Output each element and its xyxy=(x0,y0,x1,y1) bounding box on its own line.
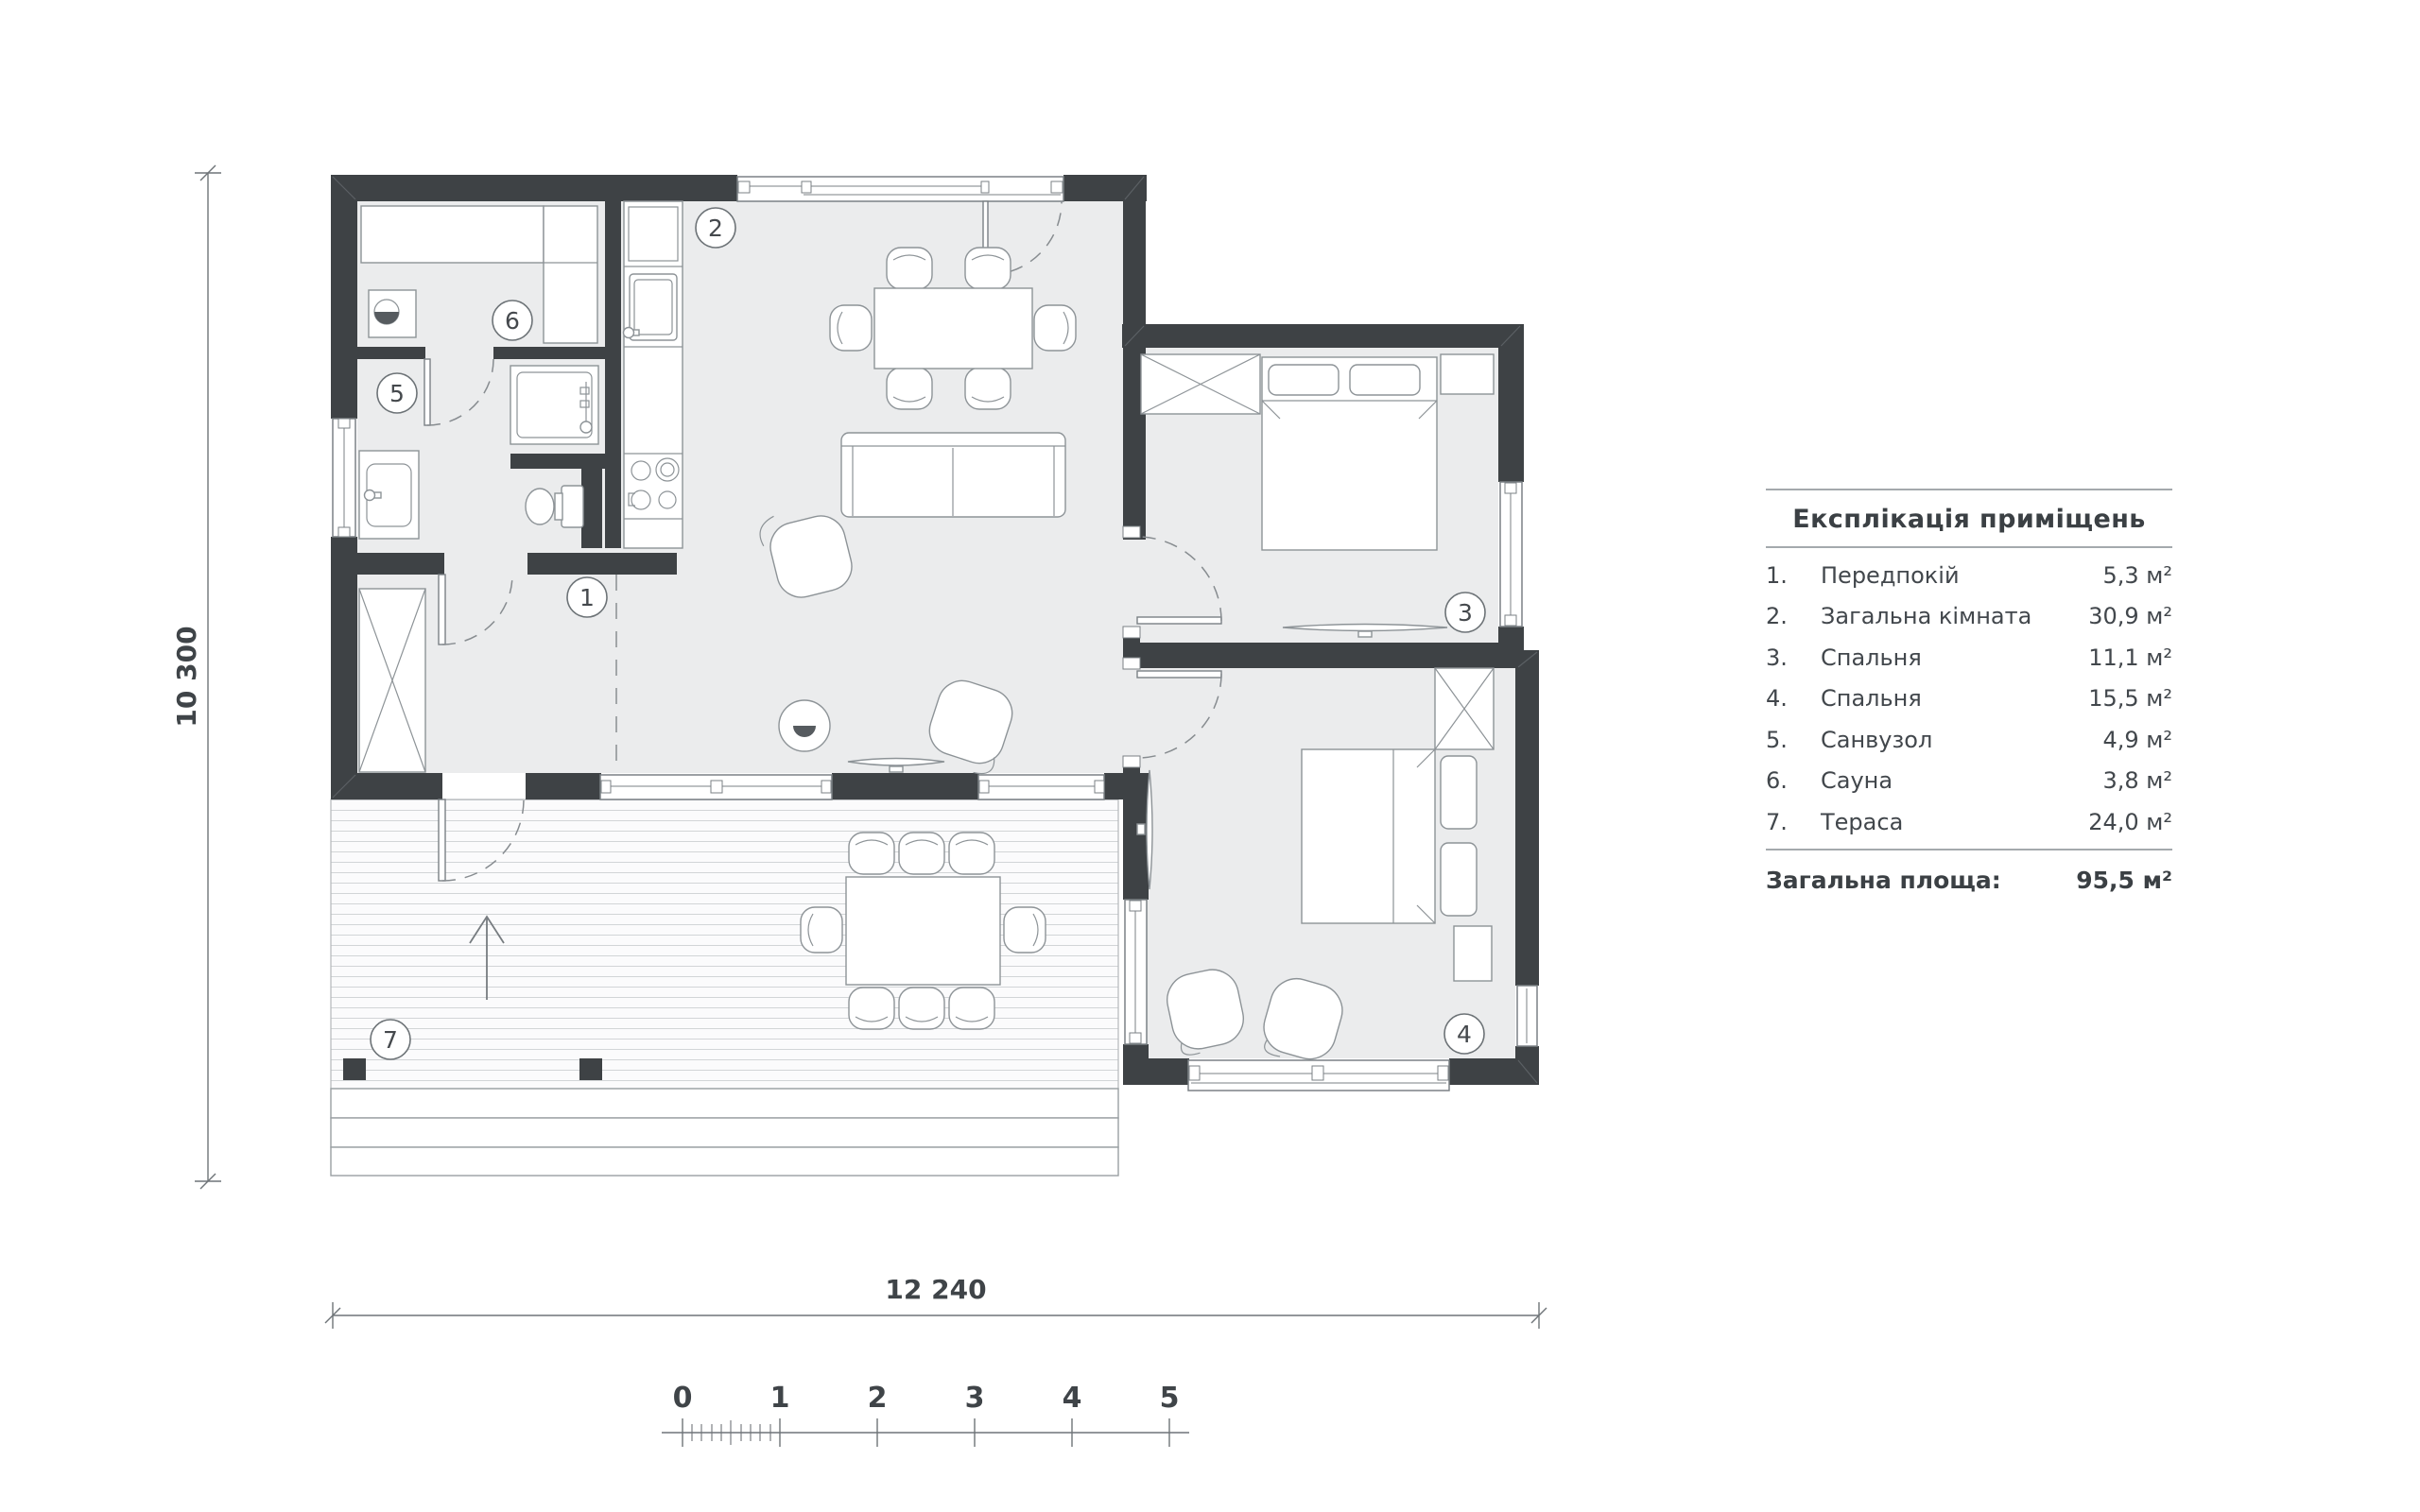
hall-furniture xyxy=(359,589,425,772)
sauna-bench-column xyxy=(544,206,597,343)
svg-text:2: 2 xyxy=(868,1382,888,1415)
legend-row-number: 4. xyxy=(1766,685,1821,712)
svg-text:0: 0 xyxy=(673,1382,693,1415)
dining-table-icon xyxy=(874,288,1032,369)
svg-text:10 300: 10 300 xyxy=(171,626,202,727)
window-west xyxy=(333,419,355,537)
legend-row-number: 5. xyxy=(1766,727,1821,753)
svg-text:1: 1 xyxy=(579,584,595,611)
legend-row: 3. Спальня 11,1 м² xyxy=(1766,637,2172,679)
legend-row-name: Передпокій xyxy=(1821,562,2102,589)
sofa-icon xyxy=(841,433,1065,517)
legend-row-area: 30,9 м² xyxy=(2088,603,2172,629)
svg-text:7: 7 xyxy=(383,1026,398,1054)
window-bedroom4-west xyxy=(1125,900,1147,1044)
window-bedroom3-east xyxy=(1500,482,1522,627)
legend-row-area: 11,1 м² xyxy=(2088,644,2172,671)
svg-text:6: 6 xyxy=(505,307,520,335)
pillow-icon xyxy=(1441,756,1477,829)
legend-row-name: Санвузол xyxy=(1821,727,2102,753)
kitchen-sink-icon xyxy=(624,274,678,340)
legend-row-number: 6. xyxy=(1766,767,1821,794)
terrace xyxy=(331,799,1118,1176)
legend-row-area: 5,3 м² xyxy=(2102,562,2172,589)
legend-row-number: 7. xyxy=(1766,809,1821,835)
legend-row: 6. Сауна 3,8 м² xyxy=(1766,761,2172,802)
legend-row-number: 1. xyxy=(1766,562,1821,589)
deck-post xyxy=(343,1058,366,1080)
svg-text:3: 3 xyxy=(965,1382,985,1415)
svg-text:2: 2 xyxy=(708,215,723,242)
floor-plan-page: 1 2 3 4 5 6 7 10 3 xyxy=(0,0,2420,1512)
legend-rows: 1. Передпокій 5,3 м² 2. Загальна кімната… xyxy=(1766,548,2172,849)
legend-title: Експлікація приміщень xyxy=(1766,490,2172,546)
legend-row-name: Загальна кімната xyxy=(1821,603,2088,629)
legend-row-number: 2. xyxy=(1766,603,1821,629)
svg-text:12 240: 12 240 xyxy=(885,1274,986,1305)
window-south-2 xyxy=(978,775,1104,799)
nightstand-icon xyxy=(1441,354,1494,394)
legend-row-name: Спальня xyxy=(1821,644,2088,671)
svg-text:4: 4 xyxy=(1063,1382,1082,1415)
room-marker-2: 2 xyxy=(696,208,735,248)
pillow-icon xyxy=(1441,843,1477,916)
window-south-1 xyxy=(600,775,832,799)
legend-total-label: Загальна площа: xyxy=(1766,867,2001,894)
kitchen xyxy=(624,201,683,548)
legend-row-name: Тераса xyxy=(1821,809,2088,835)
legend-row: 7. Тераса 24,0 м² xyxy=(1766,801,2172,843)
legend-row-name: Спальня xyxy=(1821,685,2088,712)
legend-total-value: 95,5 м² xyxy=(2076,867,2172,894)
legend-panel: Експлікація приміщень 1. Передпокій 5,3 … xyxy=(1766,489,2172,894)
legend-row-name: Сауна xyxy=(1821,767,2102,794)
wardrobe-icon xyxy=(1435,668,1494,749)
legend-row-area: 3,8 м² xyxy=(2102,767,2172,794)
legend-row: 5. Санвузол 4,9 м² xyxy=(1766,719,2172,761)
pillow-icon xyxy=(1269,365,1339,395)
nightstand-icon xyxy=(1454,926,1492,981)
window-bedroom4-south xyxy=(1188,1060,1449,1091)
dimension-width: 12 240 xyxy=(325,1274,1547,1329)
legend-row-area: 4,9 м² xyxy=(2102,727,2172,753)
svg-text:1: 1 xyxy=(770,1382,790,1415)
window-north xyxy=(737,177,1063,201)
outdoor-table-icon xyxy=(846,877,1000,985)
svg-text:3: 3 xyxy=(1458,599,1473,627)
sauna-heater-icon xyxy=(369,290,416,337)
room-marker-1: 1 xyxy=(567,577,607,617)
dimension-height: 10 300 xyxy=(171,165,221,1189)
legend-row-area: 15,5 м² xyxy=(2088,685,2172,712)
room-marker-6: 6 xyxy=(493,301,532,340)
legend-total-row: Загальна площа: 95,5 м² xyxy=(1766,850,2172,894)
legend-row: 4. Спальня 15,5 м² xyxy=(1766,679,2172,720)
side-table-icon xyxy=(779,700,830,751)
svg-text:4: 4 xyxy=(1457,1021,1472,1048)
hall-wardrobe-icon xyxy=(359,589,425,772)
room-marker-7: 7 xyxy=(371,1020,410,1059)
legend-row-area: 24,0 м² xyxy=(2088,809,2172,835)
room-marker-3: 3 xyxy=(1445,593,1485,632)
room-marker-4: 4 xyxy=(1444,1014,1484,1054)
svg-text:5: 5 xyxy=(1160,1382,1180,1415)
legend-row: 2. Загальна кімната 30,9 м² xyxy=(1766,596,2172,638)
terrace-steps xyxy=(331,1089,1118,1176)
svg-text:5: 5 xyxy=(389,380,405,407)
legend-row-number: 3. xyxy=(1766,644,1821,671)
bed-icon xyxy=(1262,357,1437,550)
pillow-icon xyxy=(1350,365,1420,395)
washbasin-icon xyxy=(359,451,419,539)
deck-post xyxy=(579,1058,602,1080)
wardrobe-icon xyxy=(1141,354,1260,414)
scale-bar: 0 1 2 3 4 5 xyxy=(662,1382,1189,1447)
shower-icon xyxy=(510,366,598,444)
room-marker-5: 5 xyxy=(377,373,417,413)
legend-row: 1. Передпокій 5,3 м² xyxy=(1766,555,2172,596)
window-bedroom4-east xyxy=(1517,986,1537,1046)
sauna-bench xyxy=(361,206,544,263)
